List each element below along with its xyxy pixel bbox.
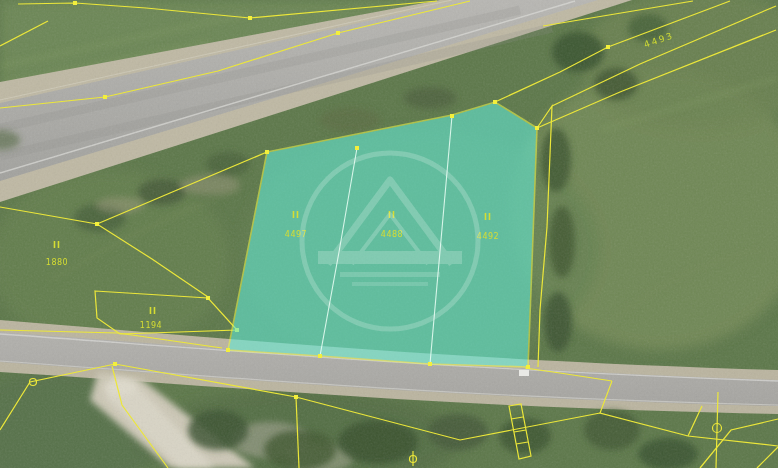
parcel-code-label: II [484, 213, 492, 222]
parcel-code-label: II [149, 307, 157, 316]
cadastral-map-canvas[interactable]: II 4497 II 4488 II 4492 II 1880 II 1194 … [0, 0, 778, 468]
cadastral-map-viewport[interactable]: II 4497 II 4488 II 4492 II 1880 II 1194 … [0, 0, 778, 468]
parcel-number-label: 4488 [381, 230, 403, 239]
parcel-code-label: II [53, 241, 61, 250]
parcel-number-label: 1194 [140, 321, 162, 330]
parcel-number-label: 1880 [46, 258, 68, 267]
parcel-code-label: II [292, 211, 300, 220]
road-sign [519, 370, 529, 376]
